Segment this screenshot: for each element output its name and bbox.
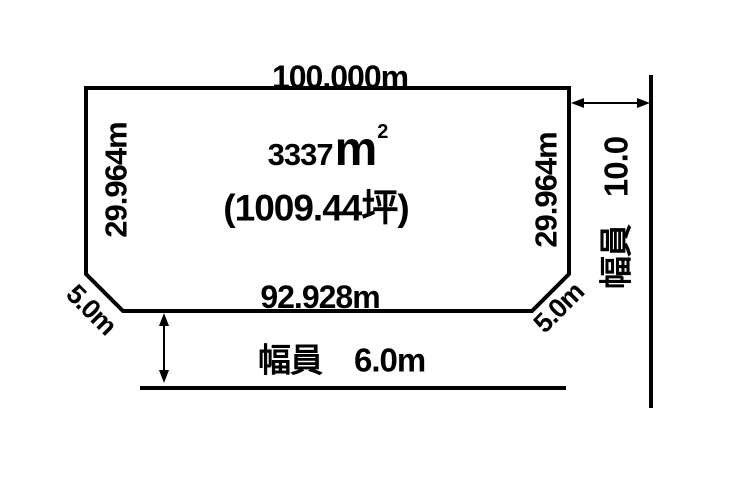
parcel-area-sqm: 3337 m 2: [268, 126, 389, 174]
right-road-width-value: 10.0: [600, 137, 633, 197]
land-plot-diagram: 100.000m 29.964m 29.964m 92.928m 5.0m 5.…: [0, 0, 740, 490]
area-unit: m: [335, 126, 378, 174]
bottom-road-width: 幅員 6.0m: [258, 344, 425, 377]
right-edge-dimension: 29.964m: [531, 132, 562, 247]
right-road-width-label: 幅員: [600, 225, 633, 289]
parcel-area-tsubo: (1009.44坪): [223, 190, 408, 227]
right-road-width-arrow: [571, 98, 650, 108]
bottom-road-width-arrow: [159, 313, 169, 383]
area-value: 3337: [268, 139, 333, 170]
left-edge-dimension: 29.964m: [101, 122, 132, 237]
bottom-edge-dimension: 92.928m: [260, 281, 379, 313]
bottom-road-width-value: 6.0m: [354, 344, 425, 377]
bottom-road-width-label: 幅員: [258, 344, 322, 377]
top-edge-dimension: 100.000m: [272, 61, 408, 93]
area-exponent: 2: [377, 122, 388, 142]
